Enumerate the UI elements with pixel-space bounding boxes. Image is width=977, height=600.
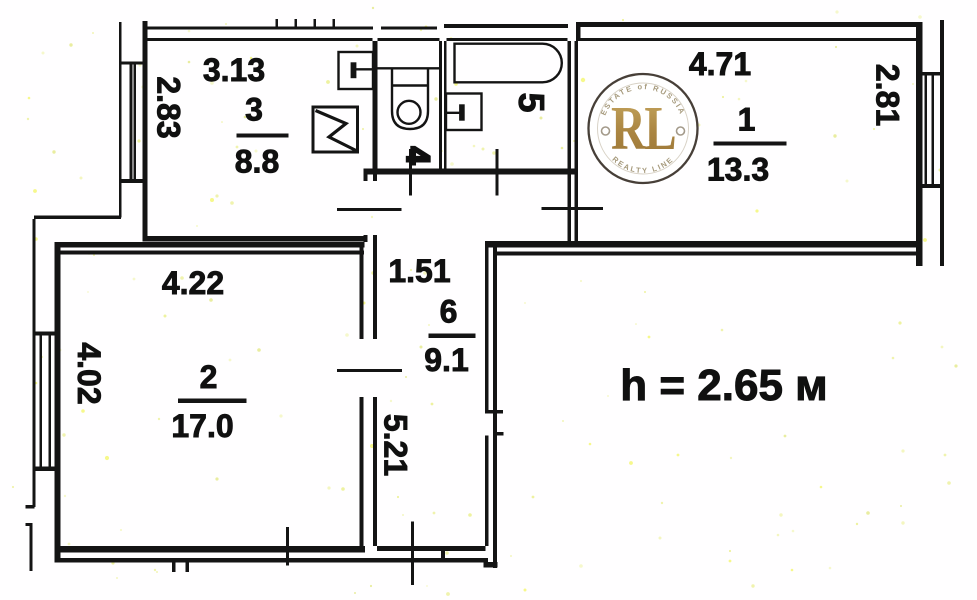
svg-text:3.13: 3.13 [203, 52, 265, 88]
svg-text:6: 6 [440, 294, 458, 330]
svg-text:4.22: 4.22 [162, 265, 224, 301]
svg-text:5.21: 5.21 [378, 414, 414, 476]
svg-text:2.83: 2.83 [151, 76, 187, 138]
svg-text:1.51: 1.51 [388, 253, 450, 289]
svg-text:4.71: 4.71 [689, 46, 751, 82]
svg-text:4.02: 4.02 [71, 342, 107, 404]
svg-text:13.3: 13.3 [707, 152, 769, 188]
svg-text:2: 2 [200, 359, 218, 395]
svg-text:h = 2.65 м: h = 2.65 м [620, 361, 827, 410]
svg-text:5: 5 [511, 92, 552, 112]
svg-text:1: 1 [738, 102, 756, 138]
svg-text:3: 3 [245, 92, 263, 128]
svg-text:8.8: 8.8 [235, 144, 279, 180]
svg-text:RL: RL [611, 94, 675, 163]
svg-text:9.1: 9.1 [424, 342, 468, 378]
svg-text:2.81: 2.81 [870, 64, 906, 126]
svg-text:17.0: 17.0 [171, 408, 233, 444]
svg-text:4: 4 [400, 147, 436, 165]
